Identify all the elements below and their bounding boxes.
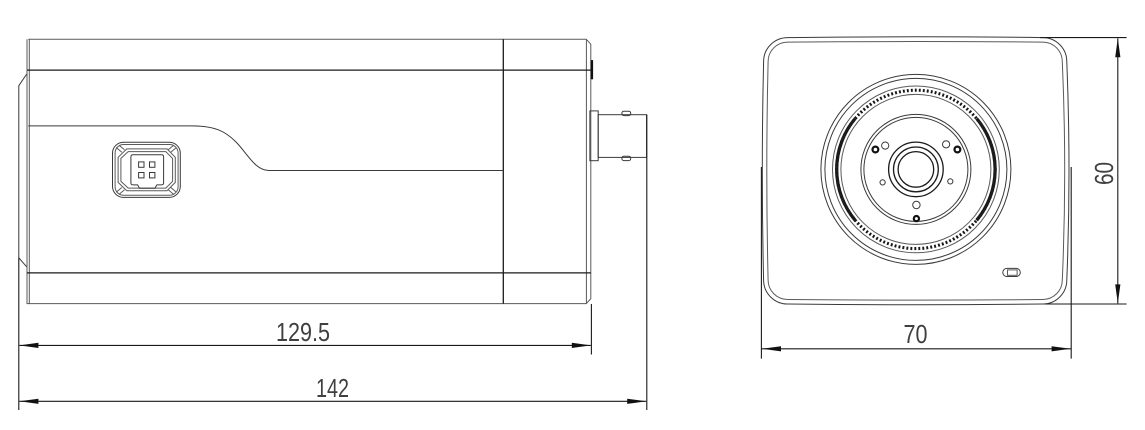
svg-text:129.5: 129.5 [276, 319, 330, 347]
svg-text:70: 70 [904, 321, 928, 349]
svg-text:142: 142 [316, 375, 349, 403]
svg-text:60: 60 [1091, 162, 1119, 185]
